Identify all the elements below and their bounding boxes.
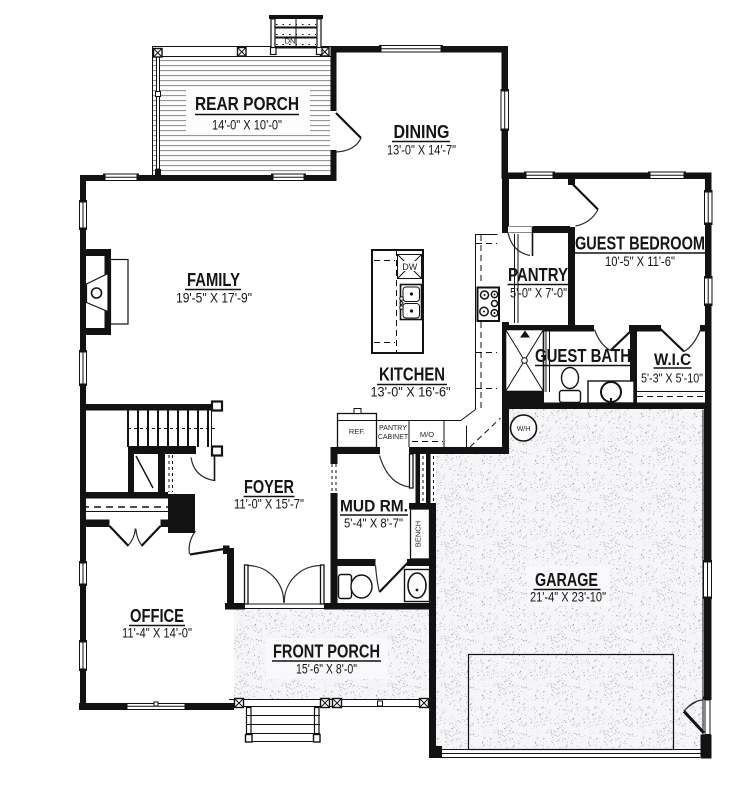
svg-text:DN: DN [285, 37, 296, 46]
svg-text:W/H: W/H [517, 426, 531, 433]
svg-text:KITCHEN: KITCHEN [379, 364, 445, 385]
svg-text:GUEST BATH: GUEST BATH [535, 346, 631, 366]
svg-text:10'-5" X 11'-6": 10'-5" X 11'-6" [605, 254, 675, 269]
svg-text:21'-4" X 23'-10": 21'-4" X 23'-10" [530, 590, 606, 605]
svg-text:FOYER: FOYER [244, 477, 294, 497]
svg-text:11'-0" X 15'-7": 11'-0" X 15'-7" [234, 497, 304, 512]
svg-text:CABINET: CABINET [378, 434, 409, 441]
svg-text:DINING: DINING [394, 122, 450, 142]
svg-text:DW: DW [402, 262, 417, 272]
svg-text:REAR PORCH: REAR PORCH [195, 94, 299, 114]
svg-text:BENCH: BENCH [414, 521, 423, 547]
svg-text:11'-4" X 14'-0": 11'-4" X 14'-0" [122, 626, 192, 641]
svg-text:MUD RM.: MUD RM. [340, 497, 408, 516]
svg-text:PANTRY: PANTRY [508, 265, 568, 285]
svg-text:PANTRY: PANTRY [379, 425, 407, 432]
svg-text:GARAGE: GARAGE [535, 569, 598, 590]
svg-text:5'-4" X 8'-7": 5'-4" X 8'-7" [344, 516, 403, 531]
svg-text:19'-5" X 17'-9": 19'-5" X 17'-9" [176, 291, 252, 306]
svg-text:FAMILY: FAMILY [187, 270, 240, 290]
svg-text:REF.: REF. [349, 427, 365, 436]
svg-text:OFFICE: OFFICE [130, 606, 184, 626]
svg-text:5'-0" X 7'-0": 5'-0" X 7'-0" [510, 286, 567, 301]
svg-text:W.I.C: W.I.C [654, 350, 691, 369]
svg-text:14'-0" X 10'-0": 14'-0" X 10'-0" [212, 117, 282, 133]
svg-text:13'-0" X 16'-6": 13'-0" X 16'-6" [371, 385, 451, 400]
svg-text:GUEST BEDROOM: GUEST BEDROOM [575, 234, 705, 254]
svg-text:5'-3" X 5'-10": 5'-3" X 5'-10" [641, 372, 703, 386]
svg-text:M/O: M/O [420, 430, 434, 439]
svg-text:13'-0" X 14'-7": 13'-0" X 14'-7" [387, 143, 456, 158]
svg-text:15'-6" X 8'-0": 15'-6" X 8'-0" [296, 662, 357, 677]
svg-text:FRONT PORCH: FRONT PORCH [273, 642, 380, 662]
